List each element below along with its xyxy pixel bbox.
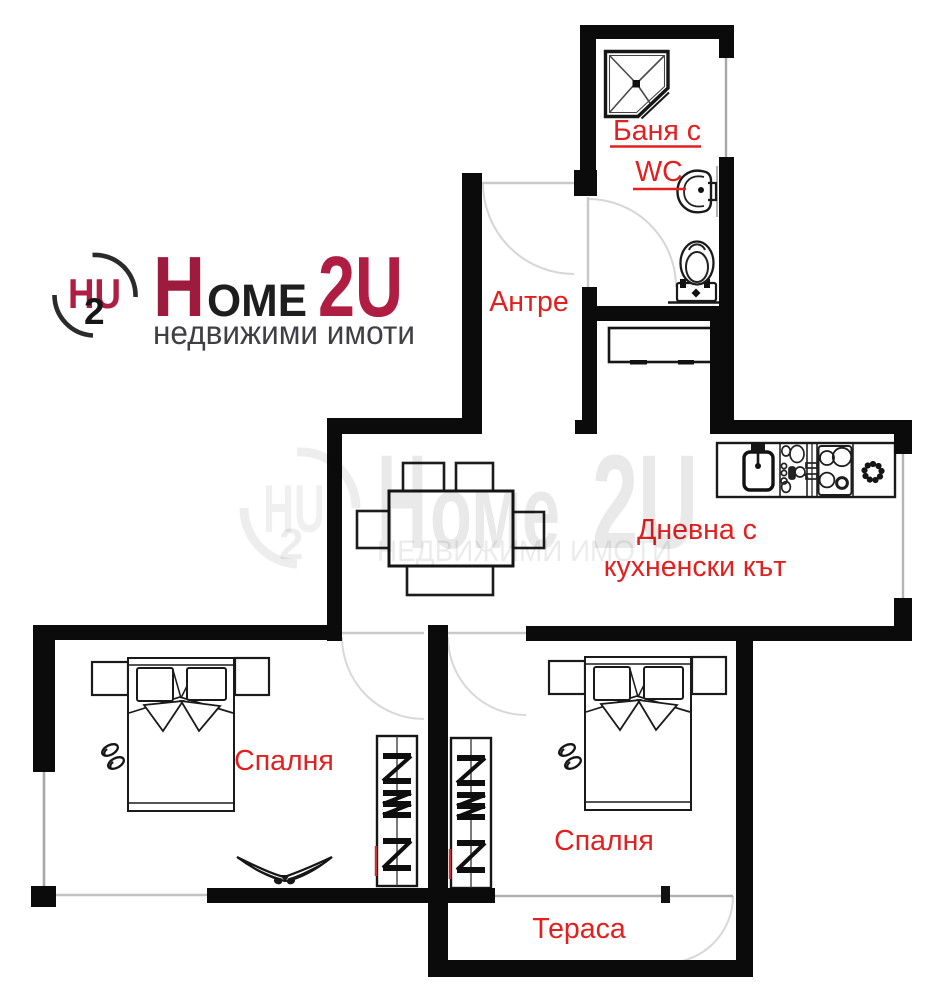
svg-text:WC: WC bbox=[635, 156, 682, 188]
svg-text:Баня с: Баня с bbox=[613, 115, 701, 147]
svg-text:2: 2 bbox=[84, 291, 105, 332]
svg-text:НЕДВИЖИМИ ИМОТИ: НЕДВИЖИМИ ИМОТИ bbox=[377, 535, 672, 568]
svg-text:2: 2 bbox=[279, 520, 303, 569]
svg-text:недвижими имоти: недвижими имоти bbox=[153, 314, 415, 351]
svg-text:Антре: Антре bbox=[489, 286, 569, 318]
svg-text:Тераса: Тераса bbox=[532, 913, 626, 945]
svg-text:Спалня: Спалня bbox=[554, 825, 654, 857]
svg-text:Спалня: Спалня bbox=[234, 745, 334, 777]
